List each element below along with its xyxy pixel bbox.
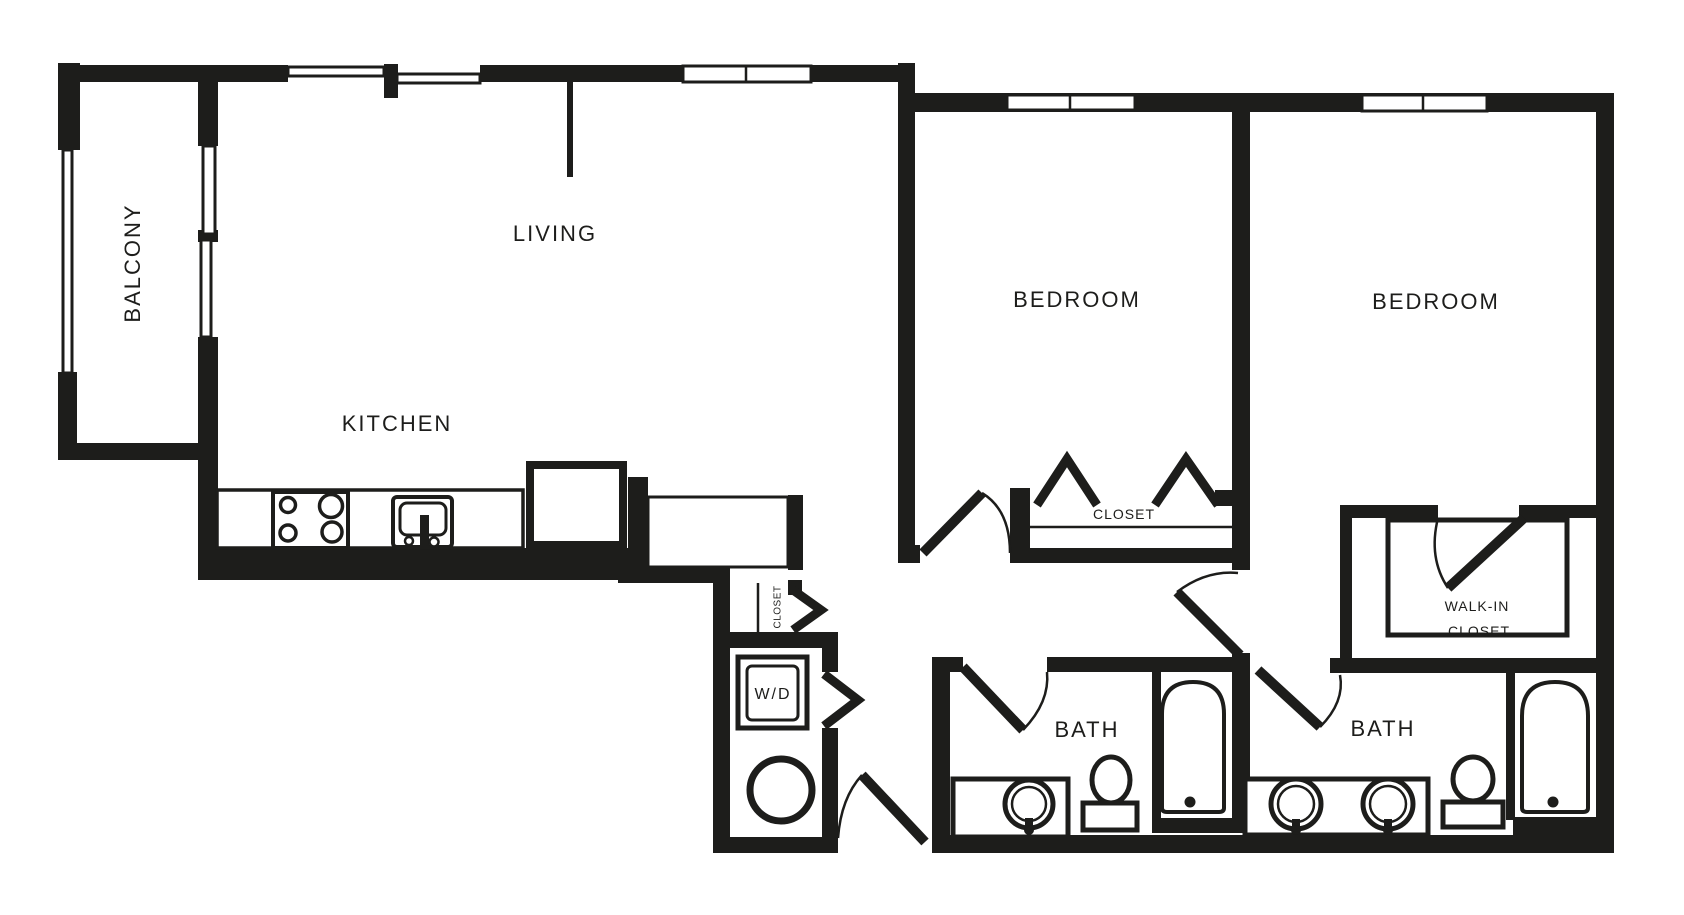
window xyxy=(1362,95,1487,111)
bifold-door-icon xyxy=(1037,459,1097,505)
vanity-bath2 xyxy=(1245,779,1428,835)
door-leaf xyxy=(963,667,1023,730)
wall-segment xyxy=(822,743,838,837)
stove-icon xyxy=(273,492,348,548)
wall-segment xyxy=(198,78,218,146)
wall-segment xyxy=(58,443,200,460)
door-swing-arc xyxy=(1177,573,1238,592)
wall-segment xyxy=(1152,672,1161,818)
balcony-railing xyxy=(63,150,72,373)
wall-segment xyxy=(713,837,838,853)
kitchen-sink-icon xyxy=(393,497,452,547)
wall-segment xyxy=(628,477,648,572)
wall-segment xyxy=(811,65,898,82)
kitchen-counter xyxy=(217,490,523,548)
wall-segment xyxy=(898,545,920,563)
wall-segment xyxy=(212,548,648,580)
peninsula-counter xyxy=(648,497,788,567)
door-swing-arc xyxy=(838,775,862,838)
wall-segment xyxy=(1340,505,1352,658)
wall-segment xyxy=(480,65,683,82)
tub-base-strip xyxy=(1513,817,1596,835)
room-label-bedroom-1: BEDROOM xyxy=(1013,287,1141,312)
room-label-bath-1: BATH xyxy=(1054,717,1119,742)
window xyxy=(201,240,211,337)
wall-segment xyxy=(713,580,730,853)
door-leaf xyxy=(1177,592,1240,655)
wall-segment xyxy=(822,728,838,743)
wall-segment xyxy=(198,337,218,580)
door-swing-arc xyxy=(1023,672,1047,730)
door-swing-arc xyxy=(982,493,1010,553)
door-leaf xyxy=(1258,670,1320,727)
room-label-kitchen: KITCHEN xyxy=(342,411,453,436)
wall-segment xyxy=(932,657,963,672)
wall-segment xyxy=(730,632,838,648)
wall-segment xyxy=(63,65,288,82)
bifold-door-icon xyxy=(793,590,821,630)
room-label-balcony: BALCONY xyxy=(120,203,145,322)
wall-segment xyxy=(1519,505,1596,518)
windows xyxy=(63,66,1487,373)
door-swing-arc xyxy=(1320,675,1341,727)
wall-segment xyxy=(1047,657,1250,672)
wall-segment xyxy=(1010,548,1250,563)
closet-rod xyxy=(1388,520,1567,635)
label-walk-in-line2: CLOSET xyxy=(1448,623,1510,639)
vanity-bath1 xyxy=(953,779,1068,837)
bifold-door-icon xyxy=(824,674,858,726)
floor-plan-canvas: BALCONY LIVING KITCHEN BEDROOM BEDROOM C… xyxy=(0,0,1684,915)
door-leaf xyxy=(923,493,982,553)
wall-segment xyxy=(932,657,950,853)
bathtub-icon xyxy=(1522,682,1588,812)
wall-segment xyxy=(898,93,1614,112)
toilet-icon xyxy=(1443,757,1503,827)
label-washer-dryer: W/D xyxy=(754,686,791,703)
label-hall-closet: CLOSET xyxy=(773,585,784,628)
window xyxy=(203,146,215,234)
wall-segment xyxy=(898,63,915,557)
entry-door-leaf xyxy=(862,775,925,842)
floor-plan-svg: BALCONY LIVING KITCHEN BEDROOM BEDROOM C… xyxy=(0,0,1684,915)
toilet-icon xyxy=(1083,757,1137,830)
label-closet-1: CLOSET xyxy=(1093,506,1155,522)
labels: BALCONY LIVING KITCHEN BEDROOM BEDROOM C… xyxy=(120,203,1510,742)
water-heater-icon xyxy=(750,759,812,821)
bifold-door-icon xyxy=(1155,459,1218,505)
wall-segment xyxy=(822,648,838,672)
window xyxy=(288,67,384,76)
room-label-bedroom-2: BEDROOM xyxy=(1372,289,1500,314)
wall-segment xyxy=(1232,95,1250,570)
ceiling-break-line xyxy=(567,82,573,177)
wall-segment xyxy=(1506,672,1515,820)
label-walk-in-line1: WALK-IN xyxy=(1445,598,1510,614)
wall-segment xyxy=(1330,658,1614,673)
room-label-bath-2: BATH xyxy=(1350,716,1415,741)
room-label-living: LIVING xyxy=(513,221,597,246)
bathtub-icon xyxy=(1162,682,1224,812)
wall-segment xyxy=(788,495,803,570)
wall-segment xyxy=(1340,505,1438,518)
tub-base-strip xyxy=(1152,818,1233,833)
wall-segment xyxy=(1596,93,1614,853)
refrigerator-icon xyxy=(530,465,623,545)
window xyxy=(397,74,480,83)
